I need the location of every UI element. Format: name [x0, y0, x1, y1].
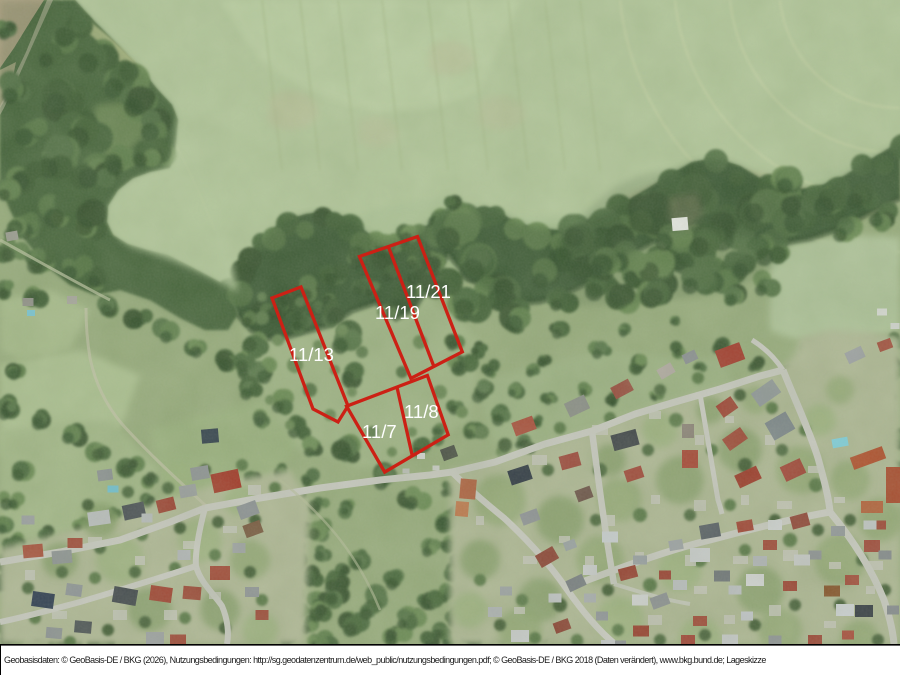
svg-text:11/13: 11/13: [289, 344, 334, 365]
svg-text:Geobasisdaten: © GeoBasis-DE /: Geobasisdaten: © GeoBasis-DE / BKG (2026…: [4, 655, 766, 665]
svg-text:11/21: 11/21: [406, 281, 451, 302]
svg-text:11/19: 11/19: [375, 302, 420, 323]
svg-text:11/7: 11/7: [362, 421, 397, 442]
svg-text:11/8: 11/8: [404, 401, 439, 422]
